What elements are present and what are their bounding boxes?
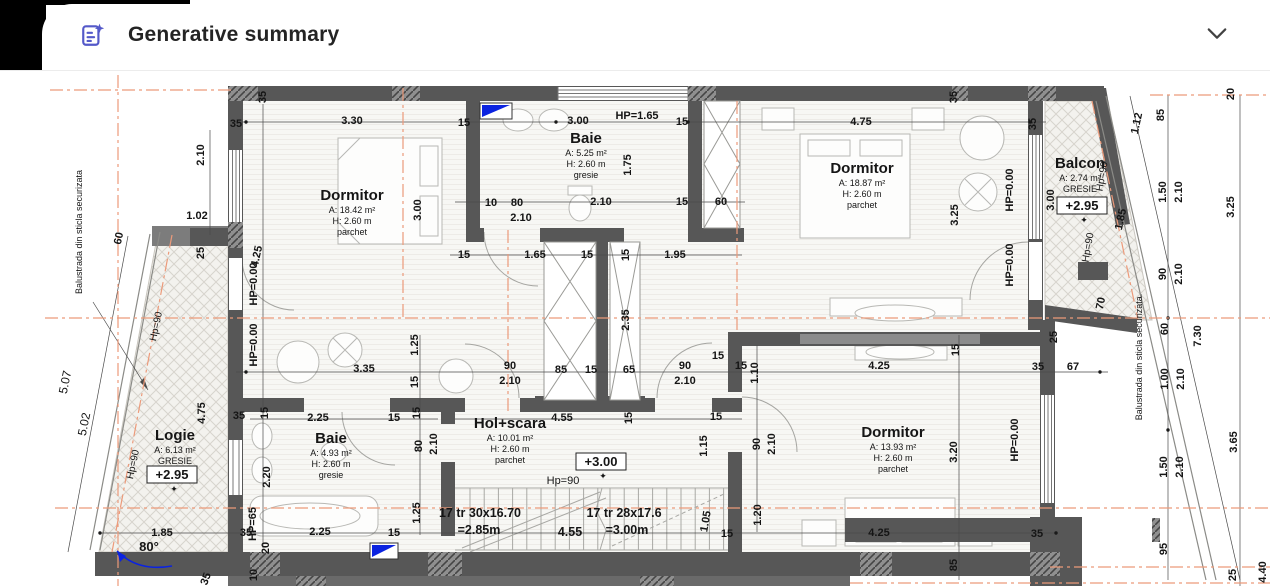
- generative-summary-icon: [80, 22, 106, 48]
- dim-label: 15: [620, 249, 632, 261]
- dim-label: 3.35: [353, 363, 374, 375]
- toilet: [569, 195, 591, 221]
- dim-label: 1.75: [622, 154, 634, 175]
- note-label: Hp=90: [547, 475, 580, 487]
- note-label: 5.07: [56, 369, 75, 395]
- room-detail: GRESIE: [158, 456, 192, 466]
- dim-label: 65: [623, 364, 635, 376]
- room-detail: parchet: [847, 200, 878, 210]
- elevation-label: +2.95: [1066, 198, 1099, 213]
- dim-label: 1.12: [1129, 112, 1145, 135]
- dim-label: 3.30: [341, 115, 362, 127]
- dim-label: 2.35: [620, 309, 632, 330]
- dim-label: 15: [581, 249, 593, 261]
- dim-label: HP=0.00: [1004, 168, 1016, 211]
- dim-label: HP=1.65: [615, 110, 658, 122]
- dim-label: 85: [948, 559, 960, 571]
- dim-label: 20: [260, 542, 272, 554]
- dim-label: 15: [388, 412, 400, 424]
- dim-label: HP=0.00: [1004, 243, 1016, 286]
- dim-label: 60: [112, 231, 126, 245]
- dim-label: 1.95: [664, 249, 685, 261]
- room-detail: H: 2.60 m: [332, 216, 371, 226]
- room-detail: H: 2.60 m: [566, 159, 605, 169]
- generative-summary-header: Generative summary: [0, 0, 1270, 70]
- dim-label: 2.10: [428, 433, 440, 454]
- dim-label: 2.10: [195, 144, 207, 165]
- dim-label: 3.25: [1225, 196, 1237, 217]
- dim-label: 3.00: [412, 199, 424, 220]
- header-divider: [0, 70, 1270, 71]
- dim-label: 85: [555, 364, 567, 376]
- dim-label: 25: [195, 247, 207, 259]
- dim-label: HP=0.00: [248, 262, 260, 305]
- room-detail: parchet: [878, 464, 909, 474]
- dim-label: 90: [504, 360, 516, 372]
- dim-label: 25: [1227, 569, 1239, 581]
- dim-label: 15: [721, 528, 733, 540]
- dim-label: 70: [1094, 296, 1108, 310]
- room-detail: H: 2.60 m: [490, 444, 529, 454]
- dim-label: 1.00: [1159, 368, 1171, 389]
- dim-label: 2.10: [1174, 456, 1186, 477]
- dim-label: 1.50: [1157, 181, 1169, 202]
- dim-label: 4.40: [1257, 561, 1269, 582]
- room-detail: A: 13.93 m²: [870, 442, 917, 452]
- dim-label: 2.10: [590, 196, 611, 208]
- room-name: Logie: [155, 427, 195, 444]
- stair-label: 17 tr 28x17.6: [586, 506, 661, 520]
- room-detail: A: 10.01 m²: [487, 433, 534, 443]
- note-label: Balustrada din sticla securizata.: [1134, 294, 1144, 421]
- plant: [960, 116, 1004, 160]
- dim-label: 1.15: [698, 435, 710, 456]
- dim-label: 2.10: [1175, 368, 1187, 389]
- dim-label: 15: [676, 116, 688, 128]
- dim-label: 35: [948, 91, 960, 103]
- room-detail: A: 4.93 m²: [310, 448, 352, 458]
- dim-label: 80: [511, 197, 523, 209]
- elevation-star-icon: ✦: [599, 471, 607, 481]
- dim-label: 90: [751, 438, 763, 450]
- dim-label: 2.20: [261, 466, 273, 487]
- stair-label: 4.55: [558, 525, 582, 539]
- plant: [277, 341, 319, 383]
- dim-label: 15: [712, 350, 724, 362]
- dim-label: 2.10: [674, 375, 695, 387]
- dim-label: 15: [585, 364, 597, 376]
- dim-label: 15: [388, 527, 400, 539]
- dim-label: 3.25: [949, 204, 961, 225]
- dim-label: 35: [1032, 361, 1044, 373]
- room-detail: H: 2.60 m: [873, 453, 912, 463]
- dim-label: 35: [233, 410, 245, 422]
- room-name: Dormitor: [861, 424, 924, 441]
- dim-label: 15: [950, 344, 962, 356]
- dim-label: 35: [1027, 118, 1039, 130]
- dim-label: HP=0.00: [1009, 418, 1021, 461]
- sink: [252, 423, 272, 449]
- note-label: Balustrada din sticla securizata: [74, 170, 84, 294]
- dim-label: 3.20: [948, 441, 960, 462]
- room-detail: H: 2.60 m: [842, 189, 881, 199]
- dim-label: 67: [1067, 361, 1079, 373]
- dim-label: HP=0.00: [248, 323, 260, 366]
- chevron-down-icon[interactable]: [1206, 26, 1228, 42]
- dim-label: 7.30: [1192, 325, 1204, 346]
- stair-label: =2.85m: [458, 523, 501, 537]
- dim-label: 2.10: [510, 212, 531, 224]
- dim-label: 90: [679, 360, 691, 372]
- dim-label: 1.50: [1158, 456, 1170, 477]
- dim-label: 35: [1031, 528, 1043, 540]
- dim-label: 15: [259, 407, 271, 419]
- dim-label: 4.25: [868, 360, 889, 372]
- dim-label: 35: [257, 91, 269, 103]
- room-detail: A: 18.87 m²: [839, 178, 886, 188]
- room-name: Baie: [315, 430, 347, 447]
- dim-label: 90: [1157, 268, 1169, 280]
- elevation-star-icon: ✦: [1080, 215, 1088, 225]
- room-detail: GRESIE: [1063, 184, 1097, 194]
- room-detail: A: 18.42 m²: [329, 205, 376, 215]
- dim-label: 1.25: [411, 502, 423, 523]
- elevation-label: +2.95: [156, 467, 189, 482]
- elevation-star-icon: ✦: [170, 484, 178, 494]
- dim-label: 20: [1225, 88, 1237, 100]
- page-title: Generative summary: [128, 23, 339, 47]
- dim-label: 2.10: [1173, 263, 1185, 284]
- room-name: Dormitor: [320, 187, 383, 204]
- dim-label: 2.10: [499, 375, 520, 387]
- dim-label: 3.65: [1228, 431, 1240, 452]
- dim-label: 15: [676, 196, 688, 208]
- plant: [439, 359, 473, 393]
- elevation-label: +3.00: [585, 454, 618, 469]
- dim-label: 15: [458, 249, 470, 261]
- dim-label: 4.55: [551, 412, 572, 424]
- room-detail: A: 5.25 m²: [565, 148, 607, 158]
- dim-label: 1.10: [749, 362, 761, 383]
- dim-label: 15: [735, 360, 747, 372]
- dim-label: 80: [413, 440, 425, 452]
- dim-label: 10: [248, 569, 260, 581]
- room-detail: parchet: [337, 227, 368, 237]
- dim-label: 60: [715, 196, 727, 208]
- dim-label: 1.25: [409, 334, 421, 355]
- dim-label: 2.10: [766, 433, 778, 454]
- room-name: Dormitor: [830, 160, 893, 177]
- dim-label: 2.25: [307, 412, 328, 424]
- dim-label: 15: [623, 412, 635, 424]
- room-name: Baie: [570, 130, 602, 147]
- room-detail: gresie: [319, 470, 344, 480]
- room-detail: A: 2.74 m²: [1059, 173, 1101, 183]
- dim-label: 1.02: [186, 210, 207, 222]
- room-detail: parchet: [495, 455, 526, 465]
- dim-label: 35: [230, 118, 242, 130]
- dim-label: 4.75: [196, 402, 208, 423]
- floor-plan-drawing: 35353.30153.00HP=1.65154.7535351.1285202…: [0, 0, 1270, 586]
- angle-label: 80°: [139, 539, 159, 554]
- dim-label: 10: [485, 197, 497, 209]
- dim-label: 85: [1155, 109, 1167, 121]
- dim-label: 1.65: [524, 249, 545, 261]
- dim-label: 1.85: [151, 527, 172, 539]
- dim-label: 1.20: [752, 504, 764, 525]
- stair-label: =3.00m: [606, 523, 649, 537]
- room-detail: gresie: [574, 170, 599, 180]
- sink: [539, 109, 569, 131]
- dim-label: 3.00: [567, 115, 588, 127]
- dim-label: 15: [458, 117, 470, 129]
- dim-label: 25: [1048, 331, 1060, 343]
- room-detail: A: 6.13 m²: [154, 445, 196, 455]
- room-name: Hol+scara: [474, 415, 547, 432]
- dim-label: 15: [710, 411, 722, 423]
- dim-label: 2.10: [1173, 181, 1185, 202]
- dim-label: 60: [1159, 323, 1171, 335]
- dim-label: 35: [240, 527, 252, 539]
- dim-label: 2.25: [309, 526, 330, 538]
- dim-label: 3.00: [1045, 189, 1057, 210]
- dim-label: 15: [409, 376, 421, 388]
- dim-label: 4.25: [868, 527, 889, 539]
- room-detail: H: 2.60 m: [311, 459, 350, 469]
- dim-label: 15: [411, 407, 423, 419]
- dim-label: 4.75: [850, 116, 871, 128]
- stair-label: 17 tr 30x16.70: [439, 506, 521, 520]
- dim-label: 95: [1158, 543, 1170, 555]
